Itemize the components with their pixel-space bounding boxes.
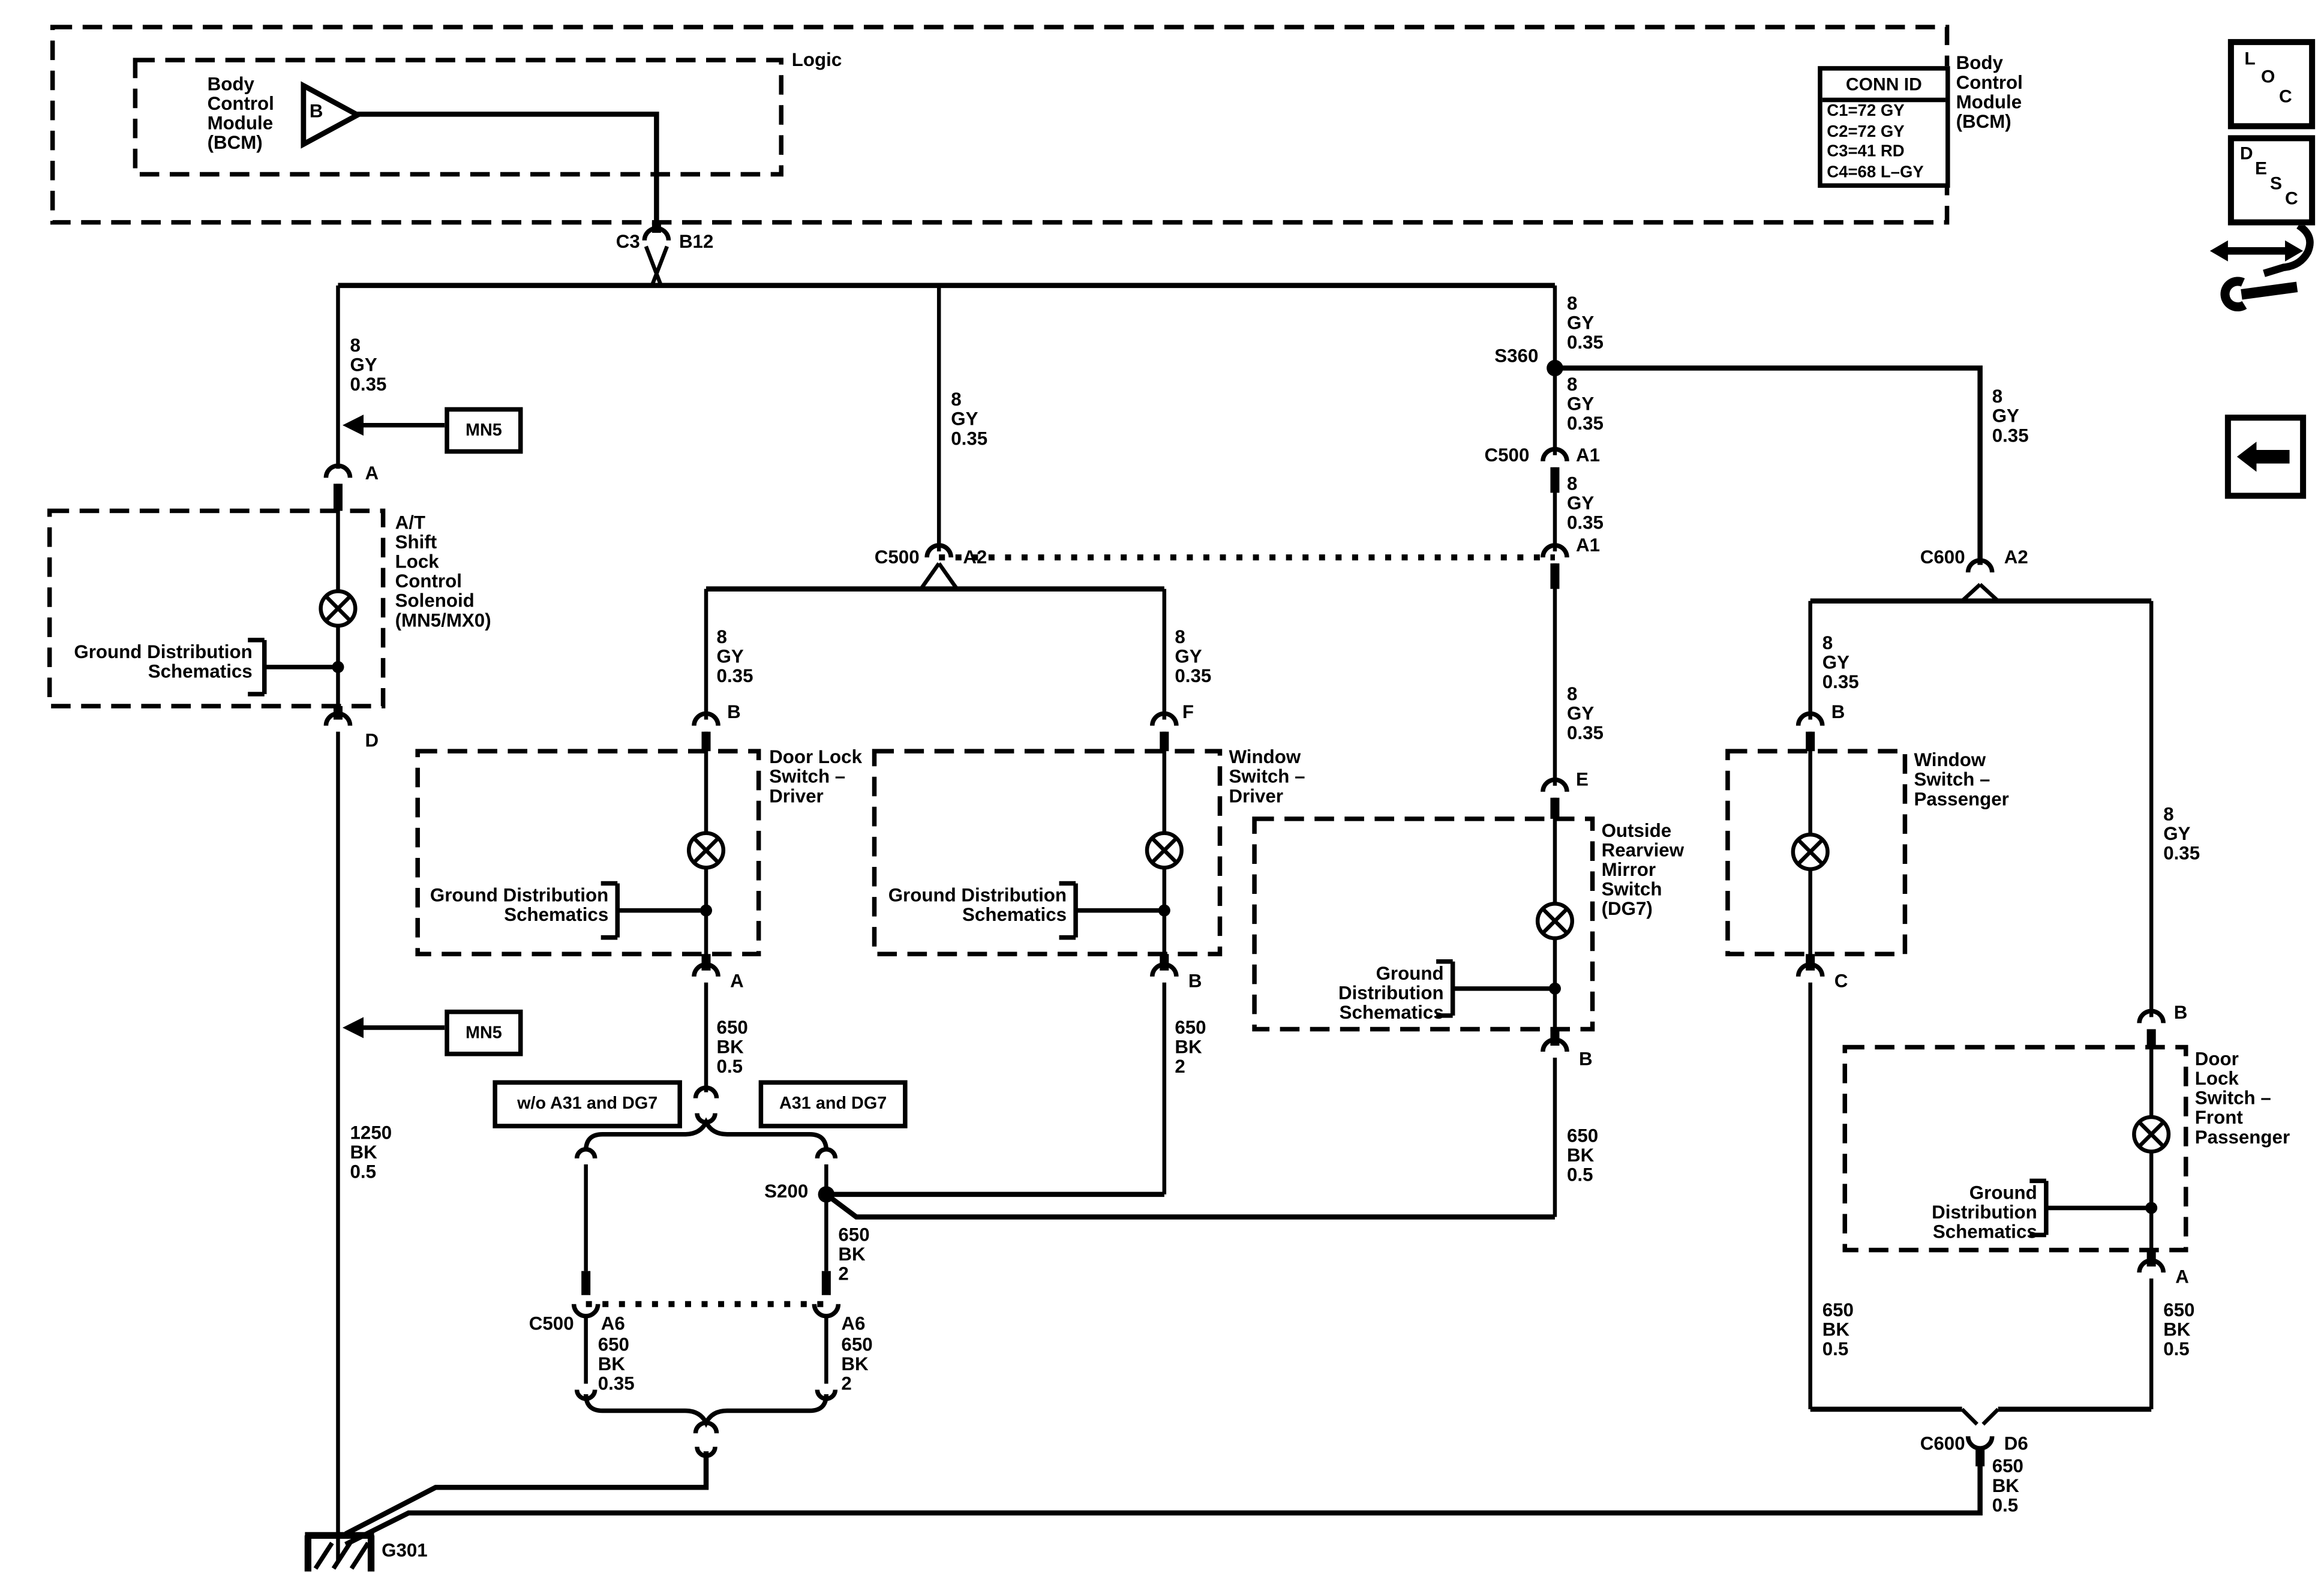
bcm-inner-label: Body Control Module (BCM) [208, 75, 274, 153]
component-label-door-lock-driver: Door Lock Switch – Driver [769, 748, 862, 807]
component-label-shift-lock: A/T Shift Lock Control Solenoid (MN5/MX0… [395, 514, 491, 631]
wire-label-650bk05: 650 BK 0.5 [717, 1019, 748, 1077]
conn-id-row: C4=68 L–GY [1822, 163, 1945, 184]
wire-label-8gy: 8 GY 0.35 [350, 337, 387, 395]
dashed-boxes [50, 27, 2186, 1250]
wire-label-650bk05: 650 BK 0.5 [1822, 1301, 1854, 1360]
ground-ref-brackets [248, 640, 2151, 1235]
terminal-label-a2: A2 [963, 548, 987, 568]
terminal-label-a1-inline: A1 [1576, 536, 1600, 556]
terminal-label-a6-left: A6 [601, 1314, 625, 1334]
terminal-label-d6: D6 [2004, 1435, 2028, 1455]
c3-b12-connector [644, 229, 668, 241]
wiring-diagram: Logic Body Control Module (BCM) B Body C… [0, 0, 2324, 1573]
conn-id-title: CONN ID [1822, 71, 1945, 103]
wire-label-650bk05: 650 BK 0.5 [1567, 1127, 1598, 1185]
desc-letter: E [2255, 159, 2267, 177]
connector-label-b12: B12 [679, 233, 713, 253]
desc-letter: C [2285, 190, 2298, 208]
loc-letter: O [2261, 68, 2275, 86]
terminal-label-a-shift: A [365, 464, 379, 484]
option-label: w/o A31 and DG7 [517, 1095, 657, 1113]
connector-label-c500-a2: C500 [853, 548, 919, 568]
lamp-window-driver [1147, 833, 1182, 868]
conn-id-row: C1=72 GY [1822, 102, 1945, 122]
conn-id-row: C2=72 GY [1822, 122, 1945, 143]
bcm-outer-label: Body Control Module (BCM) [1956, 54, 2023, 132]
wire-label-8gy: 8 GY 0.35 [1822, 634, 1859, 693]
terminal-label-a-doorpass: A [2175, 1268, 2189, 1288]
terminal-label-a2-right: A2 [2004, 548, 2028, 568]
terminal-label-a-doordriver: A [730, 972, 744, 992]
mn5-ref-box: MN5 [445, 1010, 523, 1056]
ground-ref-text: Ground Distribution Schematics [60, 643, 253, 682]
terminal-label-a6-right: A6 [841, 1314, 865, 1334]
lamp-mirror-switch [1538, 903, 1572, 938]
ground-ref-text: Ground Distribution Schematics [1266, 965, 1444, 1023]
connector-label-c600-a2: C600 [1893, 548, 1965, 568]
loc-letter: L [2244, 50, 2255, 68]
ground-ref-text: Ground Distribution Schematics [1860, 1184, 2037, 1242]
mn5-ref-label: MN5 [466, 1024, 502, 1042]
mn5-arrows [343, 415, 445, 1038]
loc-letter: C [2279, 87, 2292, 105]
c600-d6-connector [1968, 1436, 1992, 1448]
wire-label-8gy: 8 GY 0.35 [1567, 685, 1604, 744]
lamp-door-lock-passenger [2134, 1117, 2169, 1152]
connector-label-c3: C3 [595, 233, 640, 253]
connector-label-c500-a6: C500 [508, 1314, 574, 1334]
wire-label-8gy: 8 GY 0.35 [1567, 376, 1604, 434]
wire-label-1250bk: 1250 BK 0.5 [350, 1124, 392, 1182]
c600-a2-connector [1968, 560, 1992, 572]
connector-arcs [326, 229, 2163, 1456]
ground-ref-text: Ground Distribution Schematics [887, 887, 1067, 926]
terminal-label-b-doorpass: B [2174, 1004, 2188, 1023]
connector-a-shift-lock [326, 466, 350, 478]
wire-label-650bk05: 650 BK 0.5 [2163, 1301, 2194, 1360]
ground-ref-text: Ground Distribution Schematics [428, 887, 609, 926]
connector-label-c600-d6: C600 [1893, 1435, 1965, 1455]
mn5-ref-label: MN5 [466, 421, 502, 439]
c500-a6-left-connector [574, 1304, 598, 1316]
wrench-double-arrow-icon[interactable] [2210, 226, 2310, 307]
lamp-door-lock-driver [689, 833, 723, 868]
conn-id-row: C3=41 RD [1822, 143, 1945, 163]
terminal-label-c-windowpass: C [1834, 972, 1848, 992]
option-label: A31 and DG7 [779, 1095, 887, 1113]
splice-s360 [1547, 360, 1563, 377]
terminal-label-b-mirror: B [1579, 1050, 1593, 1070]
desc-icon[interactable]: D E S C [2228, 135, 2315, 225]
splice-s200 [818, 1186, 835, 1203]
terminal-label-b-windowdriver: B [1188, 972, 1202, 992]
option-split-connector-top [695, 1088, 716, 1098]
component-label-window-driver: Window Switch – Driver [1229, 748, 1305, 807]
window-passenger-box [1728, 751, 1905, 954]
option-box-a31-dg7: A31 and DG7 [759, 1080, 908, 1128]
wire-label-8gy: 8 GY 0.35 [951, 391, 987, 449]
back-arrow-icon[interactable] [2228, 418, 2303, 496]
wire-label-650bk05: 650 BK 0.5 [1992, 1457, 2023, 1516]
wire-label-8gy: 8 GY 0.35 [1175, 628, 1211, 687]
wire-label-8gy: 8 GY 0.35 [717, 628, 753, 687]
wire-label-8gy: 8 GY 0.35 [1992, 388, 2029, 446]
illumination-lamps [321, 591, 2169, 1151]
desc-letter: S [2270, 174, 2282, 192]
desc-letter: D [2240, 144, 2253, 162]
terminal-label-e-mirror: E [1576, 771, 1589, 791]
ground-label-g301: G301 [382, 1541, 428, 1561]
loc-icon[interactable]: L O C [2228, 39, 2315, 129]
splice-label-s360: S360 [1472, 347, 1538, 367]
wire-label-650bk2: 650 BK 2 [838, 1226, 869, 1285]
terminal-label-a1: A1 [1576, 446, 1600, 466]
splice-label-s200: S200 [742, 1182, 808, 1202]
connector-label-c500-a1: C500 [1457, 446, 1529, 466]
component-label-mirror-switch: Outside Rearview Mirror Switch (DG7) [1602, 822, 1685, 920]
conn-id-table: CONN ID C1=72 GY C2=72 GY C3=41 RD C4=68… [1818, 66, 1950, 188]
lamp-window-passenger [1793, 834, 1828, 869]
mn5-ref-box: MN5 [445, 407, 523, 454]
wire-label-8gy: 8 GY 0.35 [2163, 805, 2200, 864]
wire-label-650bk2: 650 BK 2 [841, 1335, 872, 1394]
wire-label-650bk035: 650 BK 0.35 [598, 1335, 635, 1394]
component-label-door-lock-passenger: Door Lock Switch – Front Passenger [2195, 1050, 2290, 1148]
wire-label-8gy: 8 GY 0.35 [1567, 475, 1604, 533]
merge-connector-bottom [697, 1447, 715, 1456]
terminal-label-f-windowdriver: F [1182, 703, 1194, 723]
lamp-shift-lock [321, 591, 356, 626]
bcm-gate-letter: B [310, 102, 323, 122]
terminal-label-b-doordriver: B [727, 703, 741, 723]
wire-label-8gy: 8 GY 0.35 [1567, 295, 1604, 353]
terminal-label-b-windowpass: B [1831, 703, 1845, 723]
component-label-window-passenger: Window Switch – Passenger [1914, 751, 2008, 810]
wire-label-650bk2: 650 BK 2 [1175, 1019, 1206, 1077]
terminal-label-d-shift: D [365, 732, 379, 752]
connector-stubs [338, 223, 2151, 1467]
option-box-without-a31-dg7: w/o A31 and DG7 [493, 1080, 682, 1128]
logic-label: Logic [792, 51, 842, 71]
merge-brace [586, 1394, 827, 1423]
